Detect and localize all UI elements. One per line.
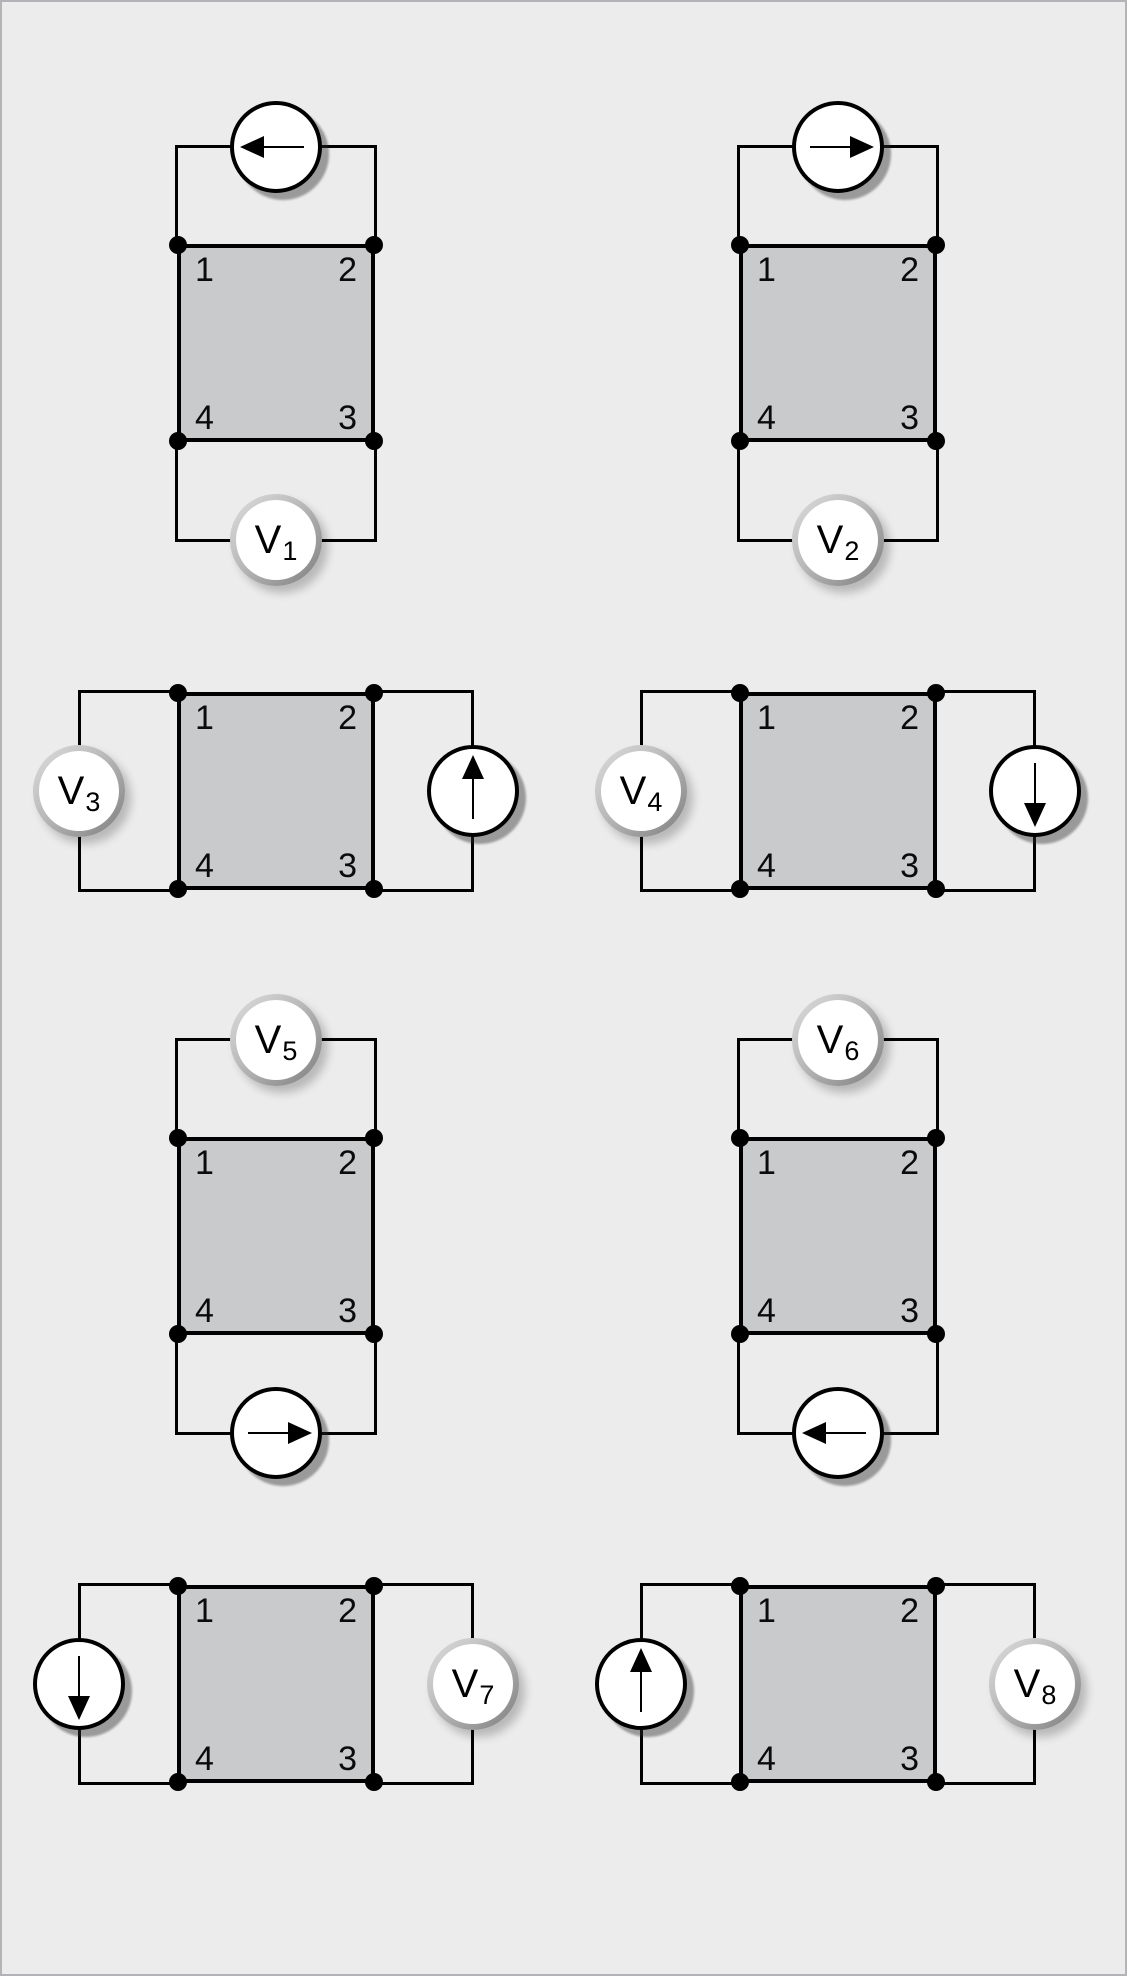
circuit-config-3: 1 2 3 4 V3 [177, 692, 375, 890]
current-arrow-up-icon [472, 775, 474, 819]
wire-segment [936, 442, 939, 541]
contact-dot-4 [731, 1325, 749, 1343]
voltmeter: V4 [595, 745, 687, 837]
voltmeter-face: V1 [236, 500, 316, 580]
wire-segment [375, 690, 473, 693]
contact-label-3: 3 [338, 849, 357, 883]
wire-segment [79, 1583, 177, 1586]
contact-dot-3 [927, 1325, 945, 1343]
wire-segment [641, 889, 739, 892]
wire-segment [374, 1335, 377, 1434]
circuit-config-1: 1 2 3 4 V1 [177, 244, 375, 442]
wire-segment [79, 1782, 177, 1785]
contact-dot-4 [169, 432, 187, 450]
voltmeter: V1 [230, 494, 322, 586]
voltmeter: V3 [33, 745, 125, 837]
current-arrow-right-icon [288, 1422, 312, 1444]
voltmeter-face: V3 [39, 751, 119, 831]
contact-dot-1 [731, 1129, 749, 1147]
circuit-config-6: 1 2 3 4 V6 [739, 1137, 937, 1335]
voltmeter-face: V6 [798, 1000, 878, 1080]
voltmeter-label-subscript: 1 [282, 538, 297, 565]
circuit-config-7: 1 2 3 4 V7 [177, 1585, 375, 1783]
contact-dot-4 [169, 1773, 187, 1791]
contact-label-2: 2 [338, 253, 357, 287]
current-source [230, 1387, 322, 1479]
contact-dot-3 [927, 880, 945, 898]
wire-segment [79, 889, 177, 892]
contact-dot-2 [365, 236, 383, 254]
voltmeter: V7 [427, 1638, 519, 1730]
contact-label-1: 1 [195, 253, 214, 287]
contact-label-2: 2 [900, 1594, 919, 1628]
contact-label-4: 4 [195, 849, 214, 883]
contact-label-3: 3 [338, 1742, 357, 1776]
voltmeter-label: V [452, 1664, 479, 1704]
contact-label-2: 2 [900, 253, 919, 287]
wire-segment [641, 690, 739, 693]
contact-dot-1 [731, 1577, 749, 1595]
contact-label-3: 3 [338, 401, 357, 435]
contact-dot-4 [169, 1325, 187, 1343]
figure-canvas: 1 2 3 4 V1 1 2 3 4 [0, 0, 1127, 1976]
contact-dot-2 [927, 236, 945, 254]
voltmeter-label-subscript: 2 [844, 538, 859, 565]
contact-dot-3 [365, 432, 383, 450]
contact-dot-3 [927, 432, 945, 450]
current-arrow-left-icon [802, 1422, 826, 1444]
voltmeter-label: V [1014, 1664, 1041, 1704]
contact-label-4: 4 [757, 1294, 776, 1328]
contact-label-1: 1 [195, 1146, 214, 1180]
current-source [230, 101, 322, 193]
current-arrow-up-icon [630, 1648, 652, 1672]
contact-dot-3 [365, 1773, 383, 1791]
contact-label-1: 1 [195, 1594, 214, 1628]
voltmeter-face: V2 [798, 500, 878, 580]
voltmeter: V5 [230, 994, 322, 1086]
voltmeter-label: V [817, 520, 844, 560]
voltmeter-label-subscript: 7 [479, 1682, 494, 1709]
contact-label-4: 4 [757, 849, 776, 883]
voltmeter-label: V [255, 520, 282, 560]
wire-segment [737, 147, 740, 245]
contact-label-2: 2 [900, 701, 919, 735]
contact-dot-4 [731, 432, 749, 450]
wire-segment [375, 1583, 473, 1586]
contact-dot-4 [731, 1773, 749, 1791]
voltmeter-label-subscript: 4 [647, 789, 662, 816]
contact-dot-3 [365, 1325, 383, 1343]
contact-dot-2 [927, 684, 945, 702]
contact-dot-2 [365, 1577, 383, 1595]
current-arrow-right-icon [850, 136, 874, 158]
wire-segment [175, 1335, 178, 1434]
wire-segment [175, 442, 178, 541]
wire-segment [375, 1782, 473, 1785]
voltmeter-face: V7 [433, 1644, 513, 1724]
contact-dot-3 [365, 880, 383, 898]
wire-segment [937, 1583, 1035, 1586]
contact-dot-1 [169, 1577, 187, 1595]
circuit-config-8: 1 2 3 4 V8 [739, 1585, 937, 1783]
current-source [792, 1387, 884, 1479]
wire-segment [175, 1040, 178, 1138]
contact-dot-1 [169, 1129, 187, 1147]
contact-dot-1 [731, 236, 749, 254]
contact-label-3: 3 [338, 1294, 357, 1328]
wire-segment [737, 442, 740, 541]
wire-segment [79, 690, 177, 693]
voltmeter: V6 [792, 994, 884, 1086]
contact-label-3: 3 [900, 1742, 919, 1776]
circuit-config-5: 1 2 3 4 V5 [177, 1137, 375, 1335]
wire-segment [937, 1782, 1035, 1785]
wire-segment [737, 1040, 740, 1138]
wire-segment [374, 442, 377, 541]
contact-label-4: 4 [757, 401, 776, 435]
current-arrow-up-icon [462, 755, 484, 779]
current-source [989, 745, 1081, 837]
contact-dot-4 [169, 880, 187, 898]
current-arrow-down-icon [68, 1696, 90, 1720]
contact-label-2: 2 [338, 1594, 357, 1628]
contact-label-2: 2 [338, 1146, 357, 1180]
contact-label-1: 1 [757, 253, 776, 287]
current-arrow-left-icon [822, 1432, 866, 1434]
voltmeter-label-subscript: 8 [1041, 1682, 1056, 1709]
circuit-config-2: 1 2 3 4 V2 [739, 244, 937, 442]
voltmeter: V8 [989, 1638, 1081, 1730]
contact-label-4: 4 [195, 1742, 214, 1776]
current-arrow-right-icon [248, 1432, 292, 1434]
current-source [595, 1638, 687, 1730]
contact-dot-1 [169, 684, 187, 702]
voltmeter-label: V [255, 1020, 282, 1060]
current-arrow-down-icon [1034, 763, 1036, 807]
contact-label-3: 3 [900, 849, 919, 883]
current-arrow-left-icon [260, 146, 304, 148]
contact-label-1: 1 [757, 1146, 776, 1180]
wire-segment [937, 690, 1035, 693]
current-arrow-up-icon [640, 1668, 642, 1712]
contact-dot-2 [927, 1129, 945, 1147]
contact-label-4: 4 [195, 401, 214, 435]
voltmeter-face: V8 [995, 1644, 1075, 1724]
contact-dot-2 [365, 1129, 383, 1147]
voltmeter-label: V [817, 1020, 844, 1060]
contact-dot-2 [927, 1577, 945, 1595]
wire-segment [175, 147, 178, 245]
contact-dot-1 [169, 236, 187, 254]
wire-segment [374, 1040, 377, 1138]
contact-label-2: 2 [338, 701, 357, 735]
contact-label-2: 2 [900, 1146, 919, 1180]
current-source [427, 745, 519, 837]
voltmeter: V2 [792, 494, 884, 586]
contact-label-4: 4 [195, 1294, 214, 1328]
voltmeter-label-subscript: 3 [85, 789, 100, 816]
circuit-config-4: 1 2 3 4 V4 [739, 692, 937, 890]
contact-label-3: 3 [900, 1294, 919, 1328]
wire-segment [641, 1782, 739, 1785]
wire-segment [936, 1335, 939, 1434]
wire-segment [737, 1335, 740, 1434]
contact-dot-2 [365, 684, 383, 702]
wire-segment [375, 889, 473, 892]
voltmeter-label-subscript: 5 [282, 1038, 297, 1065]
wire-segment [374, 147, 377, 245]
contact-dot-4 [731, 880, 749, 898]
wire-segment [641, 1583, 739, 1586]
voltmeter-label: V [58, 771, 85, 811]
contact-label-3: 3 [900, 401, 919, 435]
current-arrow-down-icon [78, 1656, 80, 1700]
current-arrow-down-icon [1024, 803, 1046, 827]
wire-segment [937, 889, 1035, 892]
current-arrow-left-icon [240, 136, 264, 158]
contact-label-1: 1 [195, 701, 214, 735]
voltmeter-label: V [620, 771, 647, 811]
contact-label-1: 1 [757, 1594, 776, 1628]
current-source [792, 101, 884, 193]
contact-label-1: 1 [757, 701, 776, 735]
wire-segment [936, 1040, 939, 1138]
contact-label-4: 4 [757, 1742, 776, 1776]
wire-segment [936, 147, 939, 245]
voltmeter-label-subscript: 6 [844, 1038, 859, 1065]
current-source [33, 1638, 125, 1730]
contact-dot-3 [927, 1773, 945, 1791]
voltmeter-face: V4 [601, 751, 681, 831]
voltmeter-face: V5 [236, 1000, 316, 1080]
contact-dot-1 [731, 684, 749, 702]
current-arrow-right-icon [810, 146, 854, 148]
